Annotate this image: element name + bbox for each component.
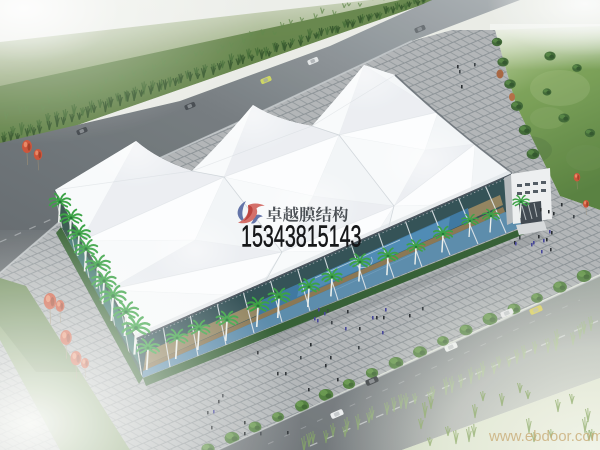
svg-text:15343815143: 15343815143 [241,220,362,253]
svg-text:www.ebdoor.com: www.ebdoor.com [488,428,600,445]
